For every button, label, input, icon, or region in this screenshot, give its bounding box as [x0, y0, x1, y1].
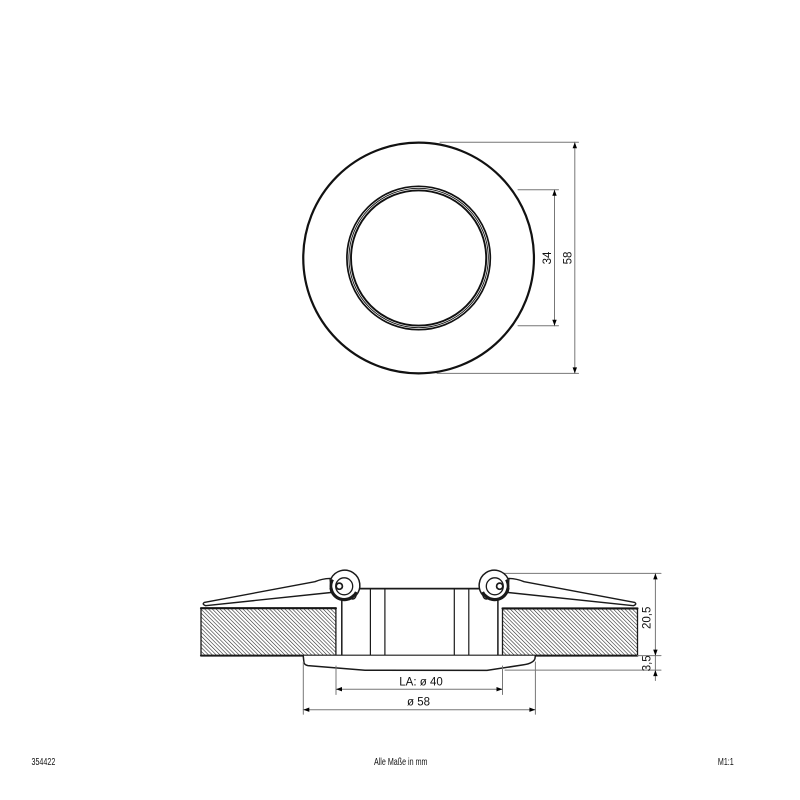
svg-text:34: 34: [542, 251, 554, 264]
svg-text:M1:1: M1:1: [718, 756, 734, 768]
svg-text:ø 58: ø 58: [407, 697, 430, 709]
svg-text:58: 58: [563, 252, 575, 265]
svg-text:354422: 354422: [32, 756, 56, 768]
svg-text:LA: ø 40: LA: ø 40: [399, 676, 442, 688]
svg-text:20,5: 20,5: [642, 607, 654, 629]
svg-text:Alle Maße in mm: Alle Maße in mm: [374, 756, 428, 768]
svg-text:3,5: 3,5: [642, 655, 654, 671]
